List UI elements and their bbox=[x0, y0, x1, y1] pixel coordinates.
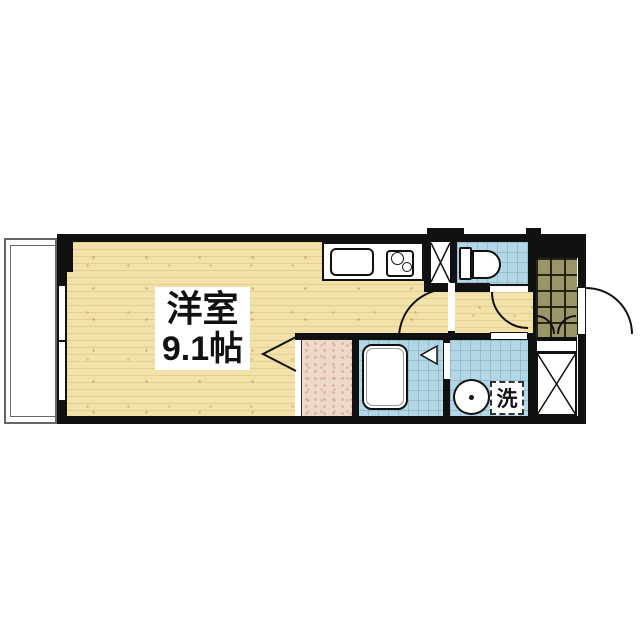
wall-bath-right-top bbox=[443, 333, 450, 343]
kitchen-sink bbox=[330, 248, 374, 276]
pipe-space-x-box bbox=[536, 352, 577, 416]
closet-floor bbox=[302, 340, 352, 416]
entrance-door-leaf bbox=[577, 287, 586, 335]
sliding-window bbox=[57, 286, 67, 400]
wall-left-step bbox=[67, 234, 73, 272]
washer-label: 洗 bbox=[497, 383, 518, 413]
toilet-bowl bbox=[472, 250, 501, 279]
room-label-size: 9.1帖 bbox=[162, 329, 243, 369]
window-sash-tick bbox=[57, 340, 66, 342]
bathtub-inner-rim bbox=[366, 348, 404, 406]
hallway-floor bbox=[453, 292, 533, 333]
toilet-tank bbox=[459, 247, 472, 280]
wall-washroom-right bbox=[528, 333, 536, 424]
wall-bottom bbox=[57, 416, 586, 424]
toilet-door-leaf bbox=[490, 284, 528, 292]
wall-top bbox=[57, 234, 586, 242]
wall-entrance-top bbox=[528, 242, 578, 258]
storage-x-box-kitchen bbox=[431, 242, 450, 283]
wall-right-upper bbox=[578, 234, 586, 288]
entrance-door-swing-arc bbox=[586, 288, 632, 334]
wall-left-lower bbox=[57, 400, 67, 424]
washing-machine-space: 洗 bbox=[490, 381, 524, 415]
wall-xbox-bottom bbox=[424, 283, 448, 292]
wall-left-upper bbox=[57, 234, 67, 286]
room-label: 洋室 9.1帖 bbox=[155, 287, 250, 370]
balcony-inner-rail bbox=[10, 245, 57, 417]
room-label-name: 洋室 bbox=[166, 289, 238, 329]
shoe-storage-doors bbox=[536, 340, 577, 352]
stove-burner-small-icon bbox=[402, 262, 412, 272]
wall-pillar-nub-2 bbox=[526, 228, 541, 236]
floor-plan: 洗 洋室 9.1帖 bbox=[0, 0, 640, 640]
entrance-tiled-floor bbox=[536, 258, 577, 337]
wall-right-lower bbox=[578, 334, 586, 424]
room-door-opening bbox=[448, 283, 455, 331]
bath-door-leaf bbox=[443, 343, 450, 379]
wall-bath-right-bottom bbox=[443, 379, 450, 416]
washbasin-drain-dot bbox=[469, 395, 474, 400]
wall-pillar-nub-1 bbox=[427, 228, 464, 236]
washroom-door-leaf bbox=[490, 332, 528, 340]
wall-toilet-bottom bbox=[455, 283, 490, 292]
wall-hall-bottom bbox=[295, 333, 490, 340]
wall-closet-right bbox=[352, 333, 359, 416]
closet-door-opening bbox=[295, 340, 302, 416]
entrance-step-line bbox=[533, 292, 536, 337]
